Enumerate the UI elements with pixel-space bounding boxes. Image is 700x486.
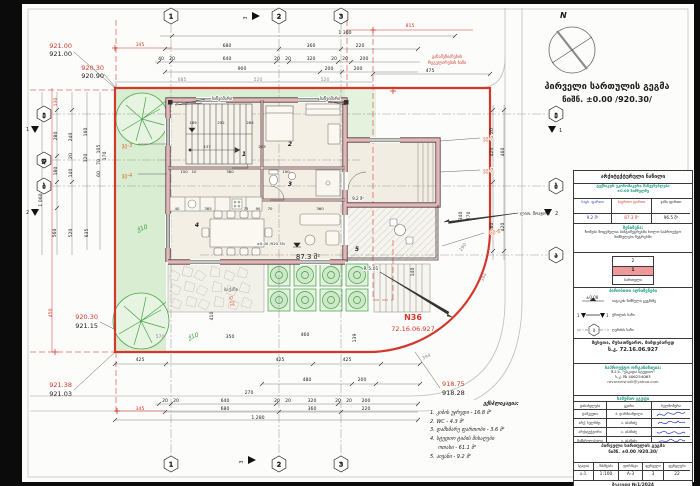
planter-grid [268,264,368,311]
dim-text: 640 [223,56,232,62]
dim-text: 20 [285,56,291,62]
landscape-code: ვგ-4 [122,173,132,179]
elevation-value: 921.00 [49,42,72,50]
explication-item: 5. აივანი - 9.2 მ² [430,453,572,462]
dim-text: 320 [307,56,316,62]
explication-item: 3. დამხმარე ფართობი - 3.6 მ² [430,426,572,435]
dim-text: 20 [489,128,495,134]
dim-text: 360 [308,406,317,412]
elevation-value: 921.00 [49,50,72,58]
axis-label: ბ [42,183,45,190]
dim-text: 40 [175,206,180,211]
dim-text: 20 [173,398,179,404]
explication-item: 4. სტუდიო ტიპის მისაღები [430,435,572,444]
dim-text: 20 [331,56,337,62]
dim-text-red: 345 [136,406,145,412]
dim-text: 425 [343,357,352,363]
elevation-value: 920.90 [81,72,104,80]
explication-item: 1. კიბის უჯრედი - 16.8 მ² [430,409,572,418]
floor-indicator: 2 1 სართული [574,253,692,288]
dim-text: 270 [245,390,254,396]
elevation-value: 918.75 [442,380,465,388]
area-col-header: საერთო ფართი [612,199,652,214]
dim-text: 70 [96,159,102,165]
dim-text: 40 [158,56,164,62]
sig-name: ა. აბაშიძე [607,428,652,437]
plant-note: ჭ10 [186,331,200,342]
parcel-number: N36 [404,313,422,322]
elevation-value: 918.28 [442,389,465,397]
dim-text: 20 [162,398,168,404]
dim-text: 20 [346,398,352,404]
floor-current: 1 [613,267,653,277]
dim-text: 900 [238,66,247,72]
landscape-code: ვგ-7 [483,136,493,142]
axis-label: 2 [277,460,281,468]
legend: პირობითი აღნიშვნები ±0.00 იატაკის ნიშნულ… [574,288,692,339]
meta-header: მასშტაბი [594,463,619,470]
room-number: 5 [355,246,359,253]
dim-text: 189 [189,120,197,125]
room-number: 4 [195,222,199,229]
dim-text: 140 [410,268,416,277]
meta-header: სტადია [574,463,594,470]
platform-label: ბაქანი [224,286,239,293]
org-email: revorevishvili@yahoo.com [574,380,692,385]
dim-text: 360 [316,206,324,211]
railing-label: ლით. მოაჯირი [520,211,550,216]
axis-label: 2 [277,12,281,20]
signature-scribble [652,410,690,419]
dim-text: 200 [360,56,369,62]
dim-text: 460 [500,148,506,157]
meta-value-sheet: 3 [643,470,664,480]
landscape-code: ვგ-6 [490,229,500,235]
dim-text: 420 [500,223,506,232]
meta-value-sheets: 22 [664,470,690,480]
dim-text: 137 [203,144,211,149]
note-text: ზომები მოცემულია სანტიმეტრებში ხოლო საპრ… [576,230,690,239]
north-label: N [560,11,567,20]
axis-label: 1 [169,460,173,468]
main-area-label: 87.3 მ² [296,253,320,261]
dim-text: 150 [180,169,188,174]
axis-label: ე [42,111,45,118]
site-cadastral: ს.კ. 72.16.06.927 [574,347,692,354]
dim-text: 75 [244,206,249,211]
dim-text: 685 [178,77,187,83]
dim-text: 635 [84,229,90,238]
area-col-header: ჯამი ფართი [652,199,690,214]
dim-text: 240 [68,133,74,142]
dim-text: 360 [307,43,316,49]
room-number: 1 [242,151,246,158]
axis-label: 3 [339,12,343,20]
dim-text: 290 [458,242,468,253]
dim-text: 70 [268,206,273,211]
elevation-value: 921.15 [75,322,98,330]
dim-text: 570 [156,334,165,340]
area-col-header: საცხ. ფართი [574,199,612,214]
plan-title: პირველი სართულის გეგმა [545,81,670,92]
dim-text: 425 [136,357,145,363]
dim-text: 105 [96,145,102,154]
dim-text: 180 [53,167,59,176]
regulation-line-label: რეგულირების ხაზი [428,60,467,65]
order-number: შეკვეთა №1/2024 [574,481,692,486]
meta-value-stage: ა.პ. [574,470,594,480]
dim-text: 200 [325,66,334,72]
axis-label: ე [554,111,557,118]
dim-text: 140 [68,169,74,178]
balcony-area-label: 9.2 მ² [352,196,364,201]
landscape-code: ვგ-7 [483,168,493,174]
dim-text: 420 [489,148,495,157]
north-compass: N [549,11,595,73]
axis-label: დ [42,157,47,164]
dim-text: 139 [352,334,358,343]
meta-table: სტადია მასშტაბი ფორმატი ფურცელი ფურცლები… [574,463,692,481]
floor-level-text: ±0.00 /920.35/ [257,241,286,246]
axis-label: ბ [554,183,557,190]
section-label: 3 [243,16,249,19]
axis-label: 1 [169,12,173,20]
dim-text: 20 [274,398,280,404]
sig-col-header: დასახელება [574,402,607,410]
meta-header: ფორმატი [619,463,643,470]
area-value: 96.5 მ² [652,214,690,223]
dim-text: 20 [169,56,175,62]
dim-text: 394 [421,352,432,361]
sig-role: არქ. ხელმძღ. [574,419,607,428]
area-value: 87.3 მ² [612,214,652,223]
signature-scribble [652,428,690,437]
legend-item-label: ღერძის ხაზი [612,328,634,332]
room-number: 2 [288,141,292,148]
sig-role: დამკვეთი [574,410,607,419]
dim-text: 200 [358,377,367,383]
terrace-paving [168,264,264,312]
section-label: 1 [559,128,562,134]
sig-name: ბ. დარჩიაშვილი [607,410,652,419]
cadastral-code: 72.16.06.927 [391,325,434,333]
dim-text: 160 [83,128,89,137]
dim-text-red: 130 [53,98,59,107]
landscape-code: ვგ-3 [122,143,132,149]
dim-text: 190 [282,169,290,174]
room-number: 3 [288,181,292,188]
dim-text: 680 [221,406,230,412]
regulation-line-label: განაშენიანების [432,54,463,59]
elevation-value: 920.30 [81,64,104,72]
dim-text-red: 450 [48,309,54,318]
explication-item: 2. WC - 4.3 მ² [430,418,572,427]
dim-text: 252 [217,120,225,125]
screenshot-stage: ±0.00 /920.35/ 1 300 680 360 220 40 20 6… [0,0,700,486]
project-sheet-subtitle: ნიშნ. ±0.00 /920.30/ [574,450,692,456]
landscape-code: ვგ-5 [229,296,235,306]
signature-table: დასახელება გვარი ხელმოწერა დამკვეთი ბ. დ… [574,401,692,443]
floor-upper: 2 [613,257,653,267]
elevation-value: 921.03 [49,390,72,398]
dim-text: 520 [321,77,330,83]
tech-indicators-sub: ±0.00 ნიშნულზე [574,189,692,194]
dim-text: 680 [223,43,232,49]
area-table: საცხ. ფართი საერთო ფართი ჯამი ფართი 9.2 … [574,199,692,224]
dim-text: 280 [53,132,59,141]
tree-icon [113,293,169,349]
exterior-stair [374,264,430,312]
legend-item-label: იატაკის ნიშნული გეგმაზე [612,299,656,303]
dim-text: 20 [342,56,348,62]
dim-text: 220 [356,43,365,49]
legend-item-label: ჭრილის ხაზი [612,313,635,317]
section-label: 3 [239,460,245,463]
sig-col-header: გვარი [607,402,652,410]
dim-text: 380 [226,169,234,174]
dim-text: 1 060 [38,193,44,206]
section-line-legend-icon: 11 [576,310,610,321]
floor-label: სართული [613,276,653,284]
axis-label: ა [554,252,557,259]
downspout-label: საწვიმარი [320,96,341,101]
title-block-part-header: არქიტექტურული ნაწილი [574,171,692,184]
dim-text: 200 [354,66,363,72]
meta-header: ფურცლები [664,463,690,470]
dim-text: 20 [335,398,341,404]
section-label: 2 [555,211,558,217]
dim-text: 460 [301,332,310,338]
dim-text: 220 [362,406,371,412]
elevation-value: 921.38 [49,381,72,389]
area-value: 9.2 მ² [574,214,612,223]
floor-mark-legend-icon: ±0.00 [576,294,610,307]
dim-text: 203 [258,144,266,149]
meta-value-format: A-3 [619,470,643,480]
downspout-label: საწვიმარი [212,96,233,101]
meta-value-scale: 1:100 [594,470,619,480]
dim-text-red: 815 [406,23,415,29]
axis-line-legend-icon: ბ [576,323,610,338]
dim-text: 285 [246,120,254,125]
sig-name: ა. აბაშიძე [607,419,652,428]
dim-text: 60 [96,171,102,177]
dim-text: 1 300 [338,30,351,36]
dim-text: 320 [308,398,317,404]
plan-title-elevation: ნიშნ. ±0.00 /920.30/ [562,95,652,104]
sig-role: არქიტექტორი [574,428,607,437]
axis-label: 3 [339,460,343,468]
drawing-sheet: ±0.00 /920.35/ 1 300 680 360 220 40 20 6… [22,4,694,482]
dim-text: 200 [362,398,371,404]
dim-text: 410 [209,312,215,321]
dim-text: 170 [102,152,108,161]
dim-text: 10 [192,169,197,174]
dim-text: 475 [426,68,435,74]
dim-text: 90 [256,206,261,211]
sig-col-header: ხელმოწერა [652,402,690,410]
dim-text: 385 [204,206,212,211]
dim-text-red: 345 [136,42,145,48]
dim-text: 20 [68,153,74,159]
dim-text: 340 [458,212,464,221]
dim-text: 120 [83,154,89,163]
svg-text:1: 1 [606,313,609,318]
dim-text: 480 [303,377,312,383]
dim-text: 20 [285,398,291,404]
elevation-value: 920.30 [75,313,98,321]
site-address: მცხეთა, მუხათწყარო, მიმდებარედ [574,341,692,347]
explication-list: ექსპლიკაცია: 1. კიბის უჯრედი - 16.8 მ² 2… [430,400,572,461]
explication-title: ექსპლიკაცია: [430,400,572,409]
dim-text: 350 [226,334,235,340]
dim-text: 520 [254,77,263,83]
signature-scribble [652,419,690,428]
section-label: 1 [26,127,29,133]
dim-text: 20 [274,56,280,62]
radius-label: R 5.01 [364,266,379,272]
dim-text: 425 [276,357,285,363]
dim-text: 640 [221,398,230,404]
dim-text: 560 [52,229,58,238]
dim-text: 1 280 [251,415,264,421]
title-block: არქიტექტურული ნაწილი ტექნიკურ ეკონომიკურ… [573,170,693,486]
tree-icon [116,93,168,145]
meta-header: ფურცელი [643,463,664,470]
dim-text: 520 [68,229,74,238]
svg-text:1: 1 [577,313,580,318]
explication-item-cont: ოთახი - 61.1 მ² [430,444,572,453]
section-label: 2 [26,210,29,216]
